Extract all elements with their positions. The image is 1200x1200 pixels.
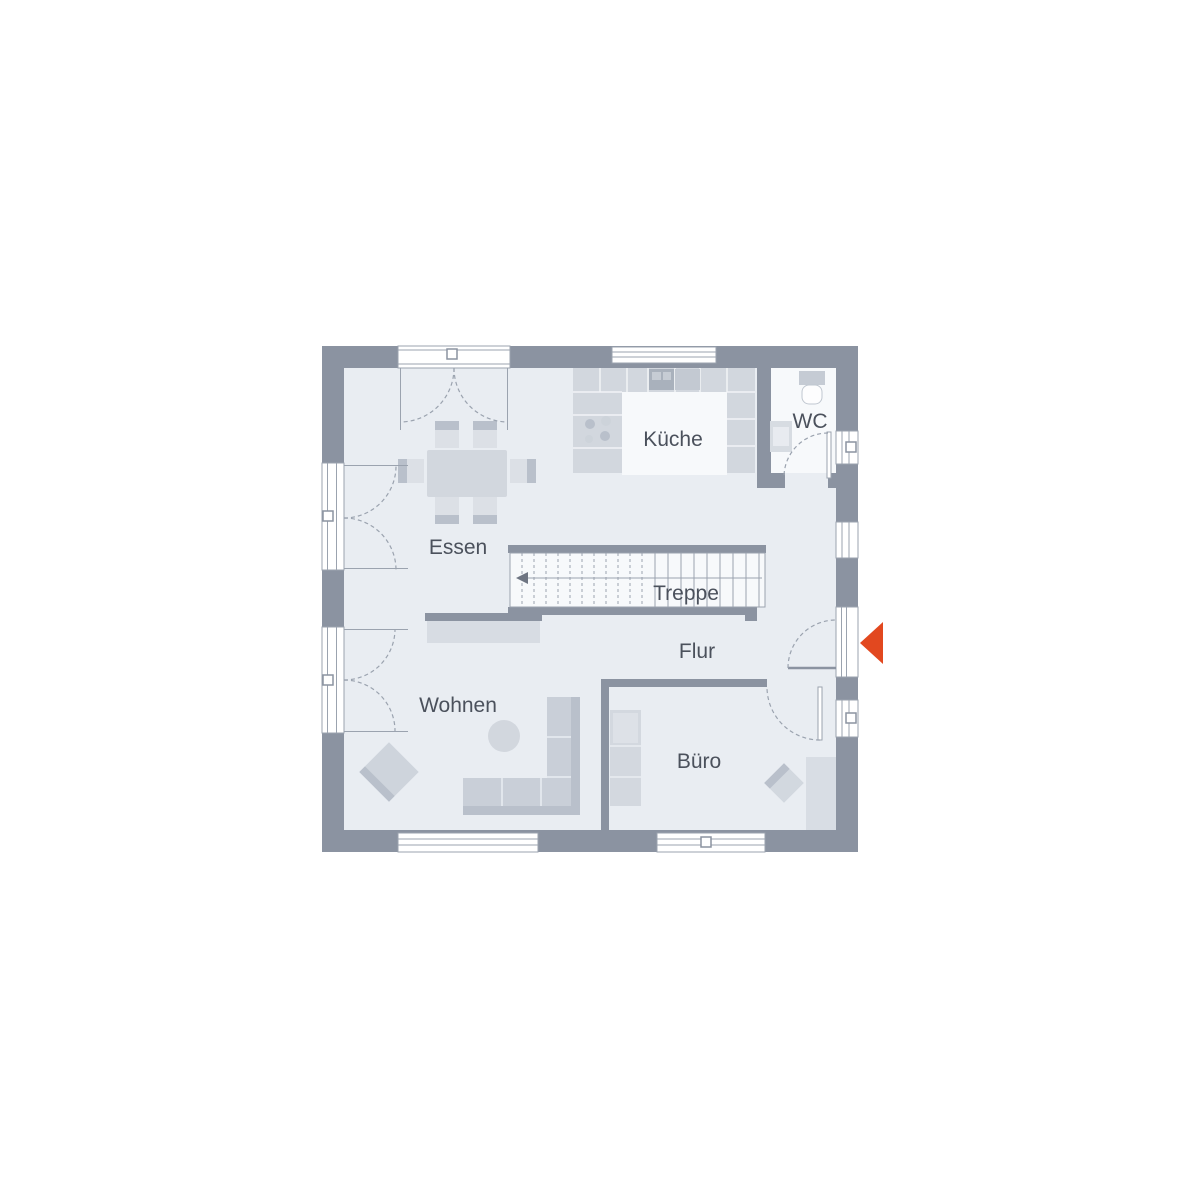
entrance-arrow-icon xyxy=(860,622,883,664)
sideboard xyxy=(427,621,540,643)
room-label-essen: Essen xyxy=(429,536,487,559)
stair-bottom-wall xyxy=(508,607,757,615)
wc-left-wall xyxy=(757,368,771,488)
sideboard-wall xyxy=(425,613,542,621)
kitchen-sink-basin-right xyxy=(663,372,671,380)
toilet-bowl xyxy=(802,385,822,404)
window-handle-icon xyxy=(846,713,856,723)
wc-bottom-wall xyxy=(757,473,785,488)
buero-top-wall xyxy=(601,679,767,687)
wc-sink-basin xyxy=(773,427,789,446)
window-handle-icon xyxy=(323,511,333,521)
room-label-kueche: Küche xyxy=(643,428,703,451)
dining-table xyxy=(427,450,507,497)
kitchen-sink-basin-left xyxy=(652,372,661,380)
wc-window xyxy=(836,431,858,464)
stair-top-wall xyxy=(508,545,766,553)
wohnen-window xyxy=(398,833,538,852)
kitchen-appliance xyxy=(675,369,700,390)
window-handle-icon xyxy=(701,837,711,847)
buero-left-wall xyxy=(601,679,609,830)
floor-plan-page: Küche WC Essen xyxy=(0,0,1200,1200)
wc-door-leaf xyxy=(827,432,831,478)
room-label-wohnen: Wohnen xyxy=(419,694,497,717)
kitchen-window xyxy=(612,347,716,363)
floor-plan-drawing: Küche WC Essen xyxy=(0,0,1200,1200)
window-handle-icon xyxy=(323,675,333,685)
flur-window-lower xyxy=(836,700,858,737)
room-label-flur: Flur xyxy=(679,640,715,663)
window-handle-icon xyxy=(447,349,457,359)
window-handle-icon xyxy=(846,442,856,452)
stair-bottom-wall-step xyxy=(745,607,757,621)
kitchen-counter-right xyxy=(727,392,755,473)
stairs: Treppe xyxy=(510,553,765,607)
room-label-treppe: Treppe xyxy=(653,582,719,605)
coffee-table xyxy=(488,720,520,752)
room-label-buero: Büro xyxy=(677,750,721,773)
toilet-tank xyxy=(799,371,825,385)
buero-window xyxy=(657,833,765,852)
flur-window xyxy=(836,522,858,558)
desk-segment xyxy=(613,713,638,743)
buero-door-leaf xyxy=(818,687,822,740)
room-flur: Flur xyxy=(679,640,715,663)
stair-body xyxy=(510,553,765,607)
buero-side-furniture xyxy=(806,757,836,830)
kitchen-counter-left xyxy=(573,392,622,473)
room-label-wc: WC xyxy=(793,410,828,433)
